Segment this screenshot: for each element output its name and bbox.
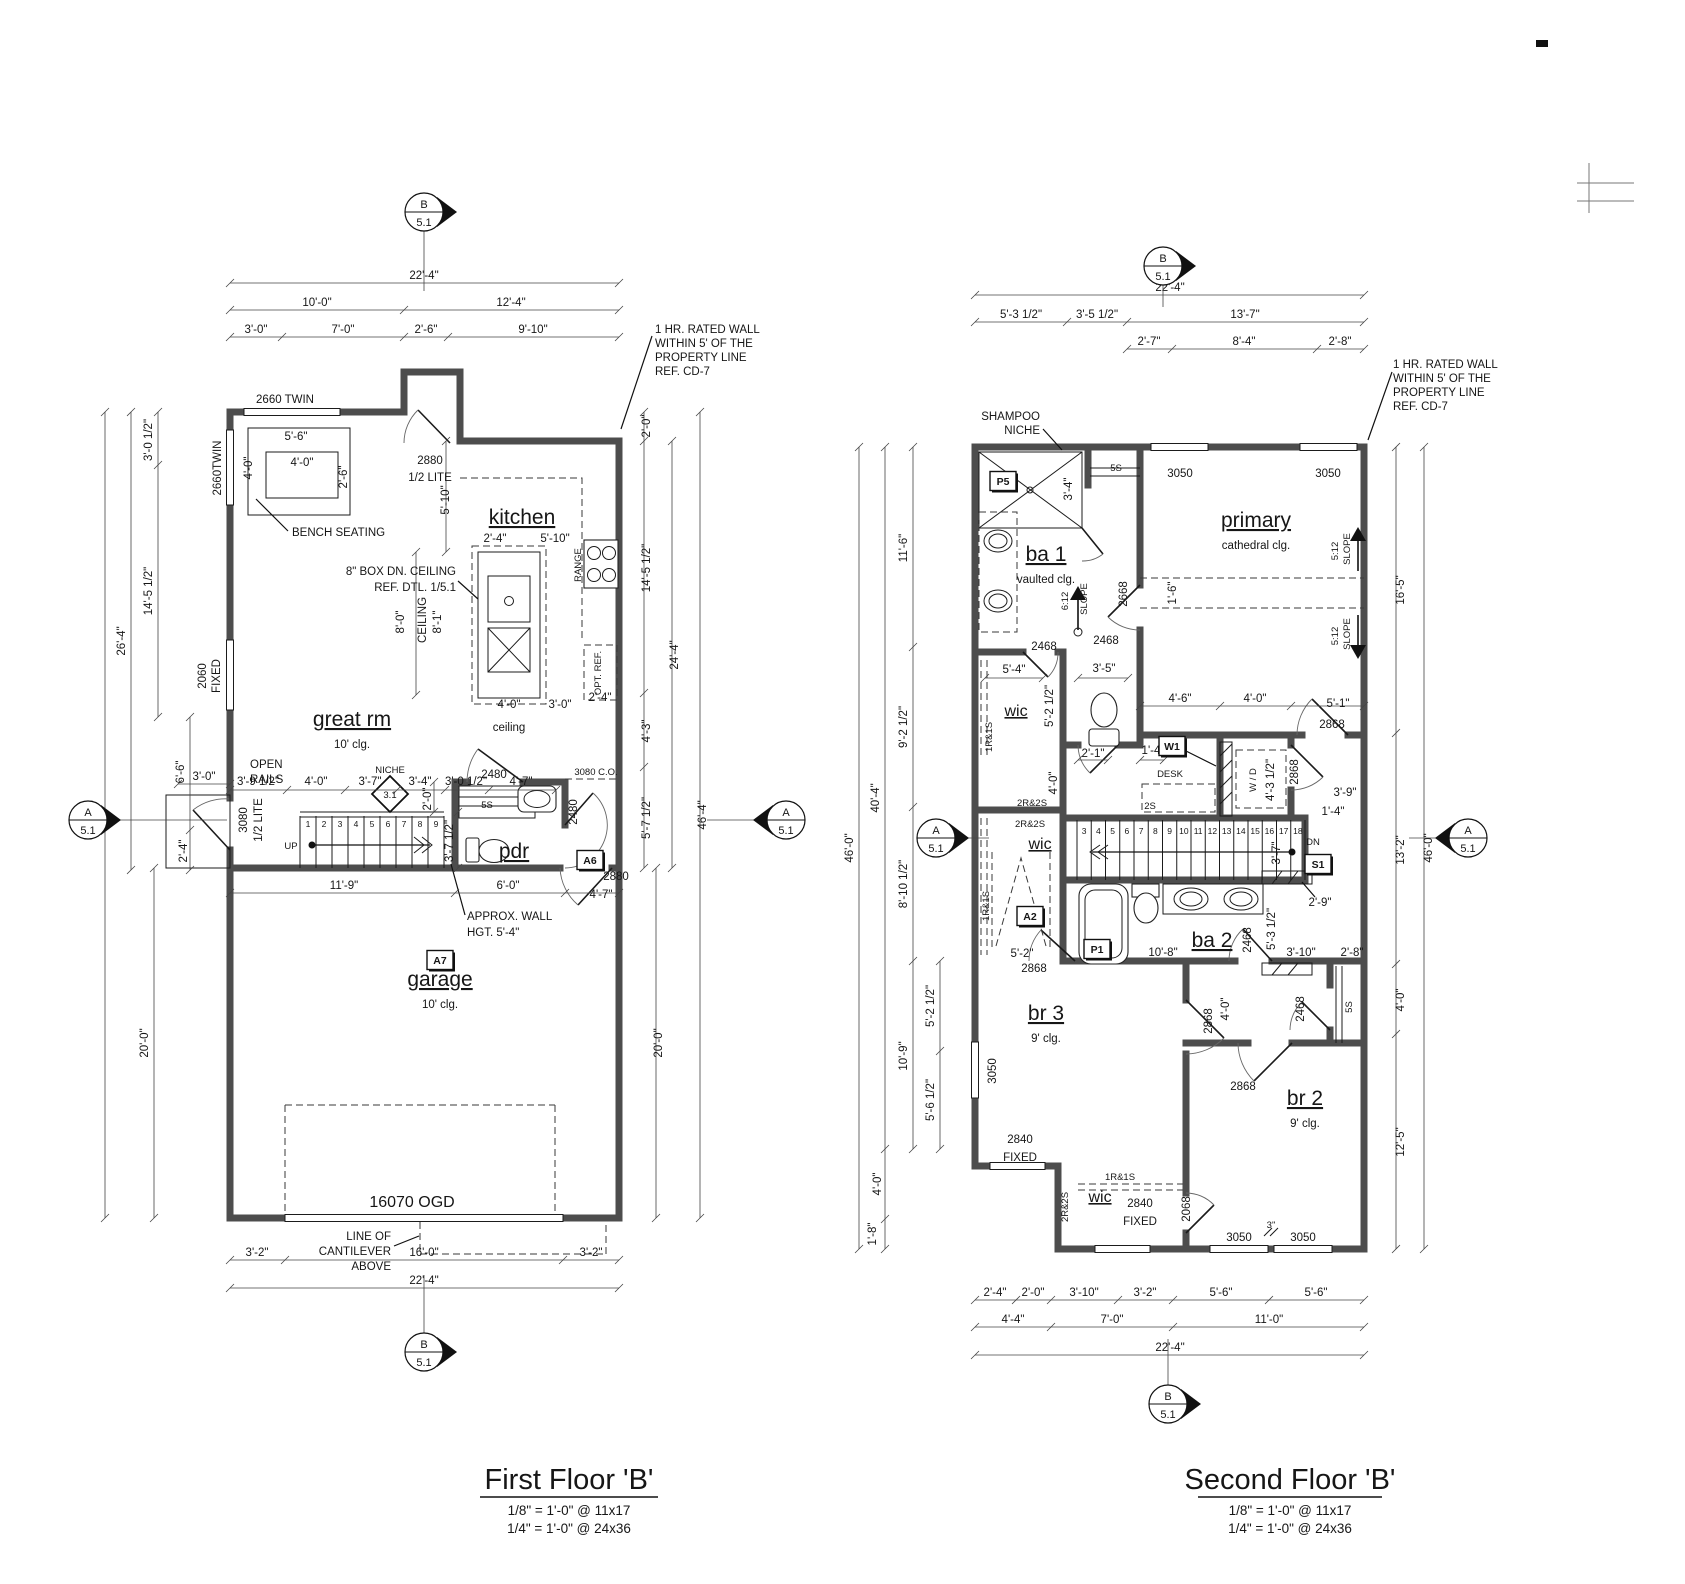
ff-fixtures bbox=[166, 428, 619, 1254]
dim-label: 3'-2" bbox=[580, 1247, 603, 1259]
dim-label: 4'-0" bbox=[1048, 772, 1060, 795]
stair-number: 4 bbox=[1096, 826, 1101, 836]
dim-label: CEILING bbox=[417, 597, 429, 643]
dim-label: 2R&2S bbox=[1015, 819, 1045, 830]
stair-number: 1 bbox=[306, 819, 311, 829]
dim-label: 4'-7" bbox=[510, 776, 533, 788]
dim-chain bbox=[127, 408, 135, 874]
dim-label: 3050 bbox=[1226, 1232, 1252, 1244]
second-floor-scale-b: 1/4" = 1'-0" @ 24x36 bbox=[1228, 1521, 1352, 1536]
ba2-toilet-bowl bbox=[1134, 893, 1158, 923]
stair-number: 18 bbox=[1293, 826, 1303, 836]
stair-arrow-start bbox=[309, 842, 316, 849]
dim-label: 2868 bbox=[1230, 1081, 1256, 1093]
dim-label: 14'-5 1/2" bbox=[641, 544, 653, 592]
dim-label: 9' clg. bbox=[1031, 1033, 1061, 1045]
dim-label: 16'-0" bbox=[409, 1247, 438, 1259]
marker-number: 5.1 bbox=[80, 825, 95, 837]
registration-marks bbox=[1536, 40, 1634, 213]
dim-chain bbox=[855, 443, 863, 1253]
dim-label: 5:12 bbox=[1330, 542, 1341, 561]
dim-label: 1R&1S bbox=[981, 891, 992, 921]
dim-label: 2'-0" bbox=[1022, 1287, 1045, 1299]
dim-label: vaulted clg. bbox=[1017, 574, 1075, 586]
dim-chain bbox=[150, 864, 158, 1222]
island-sink-cabinet bbox=[488, 576, 530, 622]
dim-label: 11'-9" bbox=[330, 880, 358, 892]
dim-label: 3'-10" bbox=[1069, 1287, 1098, 1299]
detail-tag: A6 bbox=[577, 851, 605, 872]
dim-label: 4'-7" bbox=[590, 889, 613, 901]
closet-shelf-lines bbox=[1336, 966, 1342, 1043]
detail-tag-label: P5 bbox=[997, 476, 1010, 488]
stair-number: 2 bbox=[322, 819, 327, 829]
marker-letter: B bbox=[1164, 1391, 1171, 1403]
dim-label: 2'-8" bbox=[1341, 947, 1364, 959]
dim-label: 5'-2" bbox=[1011, 948, 1034, 960]
dim-label: 2868 bbox=[1203, 1008, 1215, 1034]
dim-label: W / D bbox=[1248, 768, 1259, 792]
dim-label: 1/2 LITE bbox=[408, 472, 452, 484]
section-marker-B: B5.1 bbox=[1144, 247, 1196, 307]
dim-label: 2660TWIN bbox=[212, 441, 224, 496]
dim-label: 5'-6" bbox=[1210, 1287, 1233, 1299]
dim-label: 5'-2 1/2" bbox=[925, 985, 937, 1027]
detail-tag-label: A6 bbox=[583, 855, 597, 867]
box-ceiling-note: 8" BOX DN. CEILING bbox=[346, 566, 456, 578]
toilet-bowl bbox=[1091, 693, 1117, 727]
dim-label: 12'-5" bbox=[1395, 1127, 1407, 1156]
dim-label: 2468 bbox=[1093, 635, 1119, 647]
ff-windows bbox=[227, 409, 564, 1222]
stair-arrow-start bbox=[1289, 849, 1296, 856]
dim-label: 2868 bbox=[1021, 963, 1047, 975]
marker-number: 5.1 bbox=[1160, 1409, 1175, 1421]
dim-label: 3'-0 1/2" bbox=[143, 419, 155, 461]
stair-treads: 123456789 bbox=[300, 816, 444, 868]
dim-label: 10'-0" bbox=[302, 297, 331, 309]
approx-wall-note: APPROX. WALL bbox=[467, 911, 553, 923]
dim-label: 2S bbox=[1144, 801, 1156, 812]
dim-label: 9'-10" bbox=[518, 324, 547, 336]
corner-mark bbox=[1536, 40, 1548, 47]
dim-label: 2668 bbox=[1118, 581, 1130, 607]
dim-label: 2'-8" bbox=[1329, 336, 1352, 348]
dim-label: 24'-4" bbox=[669, 640, 681, 669]
dim-label: 3'-5 1/2" bbox=[1076, 309, 1118, 321]
dim-label: 2468 bbox=[1295, 996, 1307, 1022]
rated-wall-note: PROPERTY LINE bbox=[655, 352, 747, 364]
dim-label: 3050 bbox=[1290, 1232, 1316, 1244]
dim-label: 26'-4" bbox=[116, 626, 128, 655]
dim-label: 2'-4" bbox=[178, 840, 190, 863]
stair-number: 5 bbox=[1110, 826, 1115, 836]
room-label-br2: br 2 bbox=[1287, 1087, 1323, 1110]
dim-label: 5'-10" bbox=[440, 485, 452, 514]
open-rails-note: OPEN bbox=[250, 759, 283, 771]
dim-label: SLOPE bbox=[1342, 533, 1353, 565]
dim-label: 22'-4" bbox=[1155, 1342, 1184, 1354]
rated-wall-note: PROPERTY LINE bbox=[1393, 387, 1485, 399]
dim-label: 6'-0" bbox=[497, 880, 520, 892]
pdr-toilet-tank bbox=[466, 838, 479, 862]
dim-label: 4'-0" bbox=[305, 776, 328, 788]
dim-label: 4'-0" bbox=[243, 457, 255, 480]
room-label-pdr: pdr bbox=[499, 840, 529, 863]
dim-label: 9'-2 1/2" bbox=[898, 706, 910, 748]
marker-number: 5.1 bbox=[1460, 843, 1475, 855]
stair-number: 14 bbox=[1236, 826, 1246, 836]
open-rails-note: RAILS bbox=[250, 774, 284, 786]
marker-letter: B bbox=[420, 1339, 427, 1351]
dim-label: SLOPE bbox=[1342, 618, 1353, 650]
dim-label: 3050 bbox=[987, 1058, 999, 1084]
dim-label: 3'-0" bbox=[193, 771, 216, 783]
dim-label: 3'-0" bbox=[549, 699, 572, 711]
dim-label: 4'-0" bbox=[872, 1173, 884, 1196]
rated-wall-note: WITHIN 5' OF THE bbox=[1393, 373, 1491, 385]
dim-label: 11'-6" bbox=[898, 534, 910, 562]
dim-label: 5'-6" bbox=[1305, 1287, 1328, 1299]
dim-label: OPT. REF. bbox=[593, 651, 604, 695]
dim-label: FIXED bbox=[1003, 1152, 1037, 1164]
dim-label: 3'-0" bbox=[245, 324, 268, 336]
dim-chain bbox=[881, 443, 889, 1253]
dim-label: 3'-5" bbox=[1093, 663, 1116, 675]
dim-label: 3'-2" bbox=[246, 1247, 269, 1259]
dim-label: 4'-4" bbox=[1002, 1314, 1025, 1326]
dim-label: 2660 TWIN bbox=[256, 394, 314, 406]
cantilever-dashed bbox=[285, 1105, 606, 1254]
approx-wall-note: HGT. 5'-4" bbox=[467, 927, 519, 939]
dim-label: 4'-6" bbox=[1169, 693, 1192, 705]
stair-number: 8 bbox=[418, 819, 423, 829]
room-label-primary: primary bbox=[1221, 509, 1292, 532]
dim-label: FIXED bbox=[211, 659, 223, 693]
island-dw-x bbox=[488, 628, 530, 672]
stair-number: 11 bbox=[1194, 826, 1203, 836]
detail-tag-label: A7 bbox=[433, 955, 447, 967]
room-label-kitchen: kitchen bbox=[489, 506, 556, 529]
dim-label: 3'-2" bbox=[1134, 1287, 1157, 1299]
dim-label: 11'-0" bbox=[1255, 1314, 1283, 1326]
stair-number: 15 bbox=[1250, 826, 1260, 836]
dim-label: 2880 bbox=[603, 871, 629, 883]
rated-wall-note: WITHIN 5' OF THE bbox=[655, 338, 753, 350]
dim-label: 20'-0" bbox=[139, 1028, 151, 1057]
dim-label: 1/2 LITE bbox=[253, 798, 265, 842]
dim-label: 5'-3 1/2" bbox=[1266, 908, 1278, 950]
marker-letter: A bbox=[932, 825, 940, 837]
dim-label: 5'-3 1/2" bbox=[1000, 309, 1042, 321]
dim-chain bbox=[936, 957, 944, 1153]
stair-open-rails bbox=[300, 812, 444, 817]
dim-label: 2'-4" bbox=[984, 1287, 1007, 1299]
dim-label: NICHE bbox=[375, 765, 405, 776]
section-marker-A: A5.1 bbox=[69, 801, 227, 839]
section-marker-A: A5.1 bbox=[1409, 819, 1487, 857]
section-marker-A: A5.1 bbox=[707, 801, 805, 839]
cantilever-note: LINE OF bbox=[346, 1231, 391, 1243]
stair-number: 7 bbox=[1139, 826, 1144, 836]
crosshair-mark bbox=[1577, 163, 1634, 213]
dim-label: 4'-0" bbox=[291, 457, 314, 469]
rated-wall-note: REF. CD-7 bbox=[1393, 401, 1448, 413]
room-label-br3: br 3 bbox=[1028, 1002, 1064, 1025]
second-floor-title: Second Floor 'B' bbox=[1185, 1464, 1396, 1496]
marker-letter: A bbox=[84, 807, 92, 819]
stair-number: 17 bbox=[1279, 826, 1289, 836]
stair-number: 6 bbox=[1125, 826, 1130, 836]
dim-label: 3'-9" bbox=[1334, 787, 1357, 799]
stair-number: 9 bbox=[1167, 826, 1172, 836]
dim-label: 2840 bbox=[1007, 1134, 1033, 1146]
dim-label: 5:12 bbox=[1330, 627, 1341, 646]
dim-label: 40'-4" bbox=[870, 783, 882, 812]
dim-label: 46'-4" bbox=[697, 800, 709, 829]
dim-label: 6:12 bbox=[1060, 592, 1071, 611]
first-floor-scale-b: 1/4" = 1'-0" @ 24x36 bbox=[507, 1521, 631, 1536]
dim-label: 16070 OGD bbox=[369, 1194, 454, 1211]
dim-label: 1R&1S bbox=[984, 722, 995, 752]
detail-tag: A7 bbox=[427, 951, 455, 972]
marker-number: 5.1 bbox=[778, 825, 793, 837]
washer-dryer bbox=[1236, 750, 1286, 808]
dim-label: 3'-7 1/2" bbox=[444, 820, 456, 862]
dim-label: 5'-2 1/2" bbox=[1044, 685, 1056, 727]
stair-number: 3 bbox=[1082, 826, 1087, 836]
room-label-great-rm: great rm bbox=[313, 708, 391, 731]
dim-label: 3080 C.O. bbox=[574, 767, 617, 778]
dim-label: 3080 bbox=[238, 807, 250, 833]
dim-label: 4'-3 1/2" bbox=[1265, 759, 1277, 801]
dim-label: 7'-0" bbox=[1101, 1314, 1124, 1326]
marker-letter: B bbox=[420, 199, 427, 211]
stair-number: 10 bbox=[1179, 826, 1189, 836]
dim-label: 2'-0" bbox=[641, 415, 653, 438]
stair-number: 9 bbox=[434, 819, 439, 829]
first-floor-scale-a: 1/8" = 1'-0" @ 11x17 bbox=[508, 1503, 631, 1518]
dim-label: 10' clg. bbox=[334, 739, 370, 751]
dim-label: 13'-7" bbox=[1230, 309, 1259, 321]
dim-label: 14'-5 1/2" bbox=[143, 567, 155, 615]
stair-number: 6 bbox=[386, 819, 391, 829]
toilet-tank bbox=[1089, 729, 1119, 746]
dim-label: 12'-4" bbox=[496, 297, 525, 309]
dim-label: 3'-4" bbox=[409, 776, 432, 788]
stair-number: 4 bbox=[354, 819, 359, 829]
dim-label: 8'-0" bbox=[395, 611, 407, 634]
dim-label: 2R&2S bbox=[1017, 798, 1047, 809]
dim-label: 4'-0" bbox=[1220, 998, 1232, 1021]
dim-label: 4'-3" bbox=[641, 720, 653, 743]
dim-label: DN bbox=[1306, 837, 1320, 848]
stair-number: 13 bbox=[1222, 826, 1232, 836]
box-ceiling-outline bbox=[472, 546, 546, 704]
dim-label: 5'-6" bbox=[285, 431, 308, 443]
marker-letter: B bbox=[1159, 253, 1166, 265]
room-label-wic: wic bbox=[1027, 836, 1051, 853]
dim-label: 4'-0" bbox=[498, 699, 521, 711]
dim-label: SLOPE bbox=[1079, 583, 1090, 615]
dim-label: 7'-0" bbox=[332, 324, 355, 336]
dim-label: 2'-0" bbox=[422, 788, 434, 811]
dim-label: 10'-8" bbox=[1148, 947, 1177, 959]
rated-wall-note: 1 HR. RATED WALL bbox=[655, 324, 760, 336]
room-label-ba1: ba 1 bbox=[1026, 543, 1067, 566]
marker-number: 5.1 bbox=[928, 843, 943, 855]
dim-label: 5'-6 1/2" bbox=[925, 1079, 937, 1121]
marker-number: 5.1 bbox=[1155, 271, 1170, 283]
rated-wall-note: 1 HR. RATED WALL bbox=[1393, 359, 1498, 371]
dim-label: 2868 bbox=[1319, 719, 1345, 731]
shampoo-niche-note: SHAMPOO bbox=[981, 411, 1040, 423]
dim-label: 2'-1" bbox=[1082, 748, 1105, 760]
dim-label: 4'-0" bbox=[1395, 989, 1407, 1012]
stair-number: 5 bbox=[370, 819, 375, 829]
dim-label: 2'-6" bbox=[415, 324, 438, 336]
dim-label: 5S bbox=[481, 800, 493, 811]
stair-number: 3 bbox=[338, 819, 343, 829]
detail-tag: S1 bbox=[1305, 855, 1333, 876]
dim-label: UP bbox=[284, 841, 297, 852]
detail-tag: A2 bbox=[1017, 907, 1045, 928]
room-label-ba2: ba 2 bbox=[1192, 929, 1233, 952]
dim-label: 2480 bbox=[481, 769, 507, 781]
second-floor-scale-a: 1/8" = 1'-0" @ 11x17 bbox=[1229, 1503, 1352, 1518]
dim-label: FIXED bbox=[1123, 1216, 1157, 1228]
detail-tag: P1 bbox=[1084, 940, 1112, 961]
dim-chain bbox=[226, 306, 623, 314]
dim-label: 3'-10" bbox=[1286, 947, 1315, 959]
shampoo-niche-note: NICHE bbox=[1004, 425, 1040, 437]
dim-label: 2068 bbox=[1181, 1196, 1193, 1222]
floor-plan-sheet: 123456789 22'-4"10'-0"12'-4"3'-0"7'-0"2'… bbox=[0, 0, 1685, 1584]
landing-shelf bbox=[1262, 963, 1312, 975]
dim-label: 2868 bbox=[1289, 759, 1301, 785]
dim-label: 3'-7" bbox=[359, 776, 382, 788]
sf-titleblock: Second Floor 'B' 1/8" = 1'-0" @ 11x17 1/… bbox=[1185, 1464, 1396, 1536]
dim-label: 6'-6" bbox=[175, 761, 187, 784]
room-label-wic: wic bbox=[1003, 703, 1027, 720]
dim-label: 3'-4" bbox=[1063, 478, 1075, 501]
dim-label: 20'-0" bbox=[653, 1028, 665, 1057]
garage-door-panel bbox=[285, 1215, 563, 1222]
dim-label: 3.1 bbox=[383, 790, 396, 801]
dim-label: 5S bbox=[1344, 1001, 1355, 1013]
dim-label: 2'-4" bbox=[589, 692, 612, 704]
detail-tag-label: A2 bbox=[1023, 911, 1037, 923]
dim-label: 5'-4" bbox=[1003, 664, 1026, 676]
dim-label: 2468 bbox=[1242, 927, 1254, 953]
dim-label: 2060 bbox=[197, 663, 209, 689]
stair-number: 12 bbox=[1208, 826, 1218, 836]
cantilever-note: CANTILEVER bbox=[319, 1246, 391, 1258]
dim-label: 8'-10 1/2" bbox=[898, 860, 910, 908]
dim-label: 2'-9" bbox=[1309, 897, 1332, 909]
dim-label: 10'-9" bbox=[898, 1041, 910, 1070]
ff-labels: 22'-4"10'-0"12'-4"3'-0"7'-0"2'-6"9'-10"2… bbox=[90, 270, 760, 1287]
dim-label: 2840 bbox=[1127, 1198, 1153, 1210]
stair-number: 16 bbox=[1265, 826, 1275, 836]
dim-label: 2'-4" bbox=[484, 533, 507, 545]
dim-chain bbox=[909, 443, 917, 1153]
dim-label: 9' clg. bbox=[1290, 1118, 1320, 1130]
dim-label: 8'-1" bbox=[432, 611, 444, 634]
marker-letter: A bbox=[1464, 825, 1472, 837]
stair-number: 8 bbox=[1153, 826, 1158, 836]
dim-chain bbox=[1074, 674, 1132, 682]
marker-number: 5.1 bbox=[416, 1357, 431, 1369]
dim-label: 2'-7" bbox=[1138, 336, 1161, 348]
dim-label: 2'-6" bbox=[338, 466, 350, 489]
dim-label: 1'-6" bbox=[1167, 582, 1179, 605]
rated-wall-note: REF. CD-7 bbox=[655, 366, 710, 378]
dim-label: 3" bbox=[1267, 1220, 1276, 1231]
dim-chain bbox=[154, 408, 162, 721]
dim-label: 46'-0" bbox=[844, 833, 856, 862]
first-floor-title: First Floor 'B' bbox=[485, 1464, 654, 1496]
dim-label: 16'-5" bbox=[1395, 575, 1407, 604]
dim-label: 1'-4" bbox=[1322, 806, 1345, 818]
stair-number: 7 bbox=[402, 819, 407, 829]
dim-chain bbox=[971, 1323, 1368, 1331]
detail-tag: P5 bbox=[990, 472, 1018, 493]
section-marker-B: B5.1 bbox=[405, 1275, 457, 1371]
ff-titleblock: First Floor 'B' 1/8" = 1'-0" @ 11x17 1/4… bbox=[480, 1464, 658, 1536]
dim-label: 3050 bbox=[1315, 468, 1341, 480]
room-label-wic: wic bbox=[1087, 1189, 1111, 1206]
kitchen-island bbox=[478, 552, 540, 698]
detail-tag: W1 bbox=[1159, 737, 1187, 758]
dim-label: 10' clg. bbox=[422, 999, 458, 1011]
detail-tag-label: S1 bbox=[1312, 859, 1325, 871]
dim-label: 2R&2S bbox=[1060, 1192, 1071, 1222]
dim-label: 13'-2" bbox=[1395, 835, 1407, 864]
section-markers: B5.1B5.1A5.1A5.1B5.1B5.1A5.1A5.1 bbox=[69, 193, 1487, 1423]
box-ceiling-note: REF. DTL. 1/5.1 bbox=[374, 582, 456, 594]
attic-access bbox=[992, 852, 1050, 948]
dim-label: 5'-7 1/2" bbox=[641, 797, 653, 839]
dim-label: 5'-1" bbox=[1327, 698, 1350, 710]
dim-label: 4'-0" bbox=[1244, 693, 1267, 705]
dim-label: 1'-8" bbox=[867, 1223, 879, 1246]
marker-number: 5.1 bbox=[416, 217, 431, 229]
plan-drawing: 123456789 22'-4"10'-0"12'-4"3'-0"7'-0"2'… bbox=[0, 0, 1685, 1584]
dim-label: ceiling bbox=[493, 722, 526, 734]
detail-tag-label: P1 bbox=[1091, 944, 1104, 956]
dim-label: DESK bbox=[1157, 769, 1184, 780]
island-sink-drain bbox=[505, 597, 514, 606]
second-floor-plan: 3456789101112131415161718 22'-4"5'-3 1/2… bbox=[844, 282, 1498, 1536]
dim-label: 1R&1S bbox=[1105, 1172, 1135, 1183]
dim-label: 3050 bbox=[1167, 468, 1193, 480]
cantilever-note: ABOVE bbox=[351, 1261, 391, 1273]
dim-label: 8'-4" bbox=[1233, 336, 1256, 348]
dim-label: 2480 bbox=[568, 799, 580, 825]
dim-label: 5S bbox=[1110, 463, 1122, 474]
dim-label: 2468 bbox=[1031, 641, 1057, 653]
detail-tag-label: W1 bbox=[1164, 741, 1180, 753]
dim-label: 5'-10" bbox=[540, 533, 569, 545]
bench-seating-note: BENCH SEATING bbox=[292, 527, 385, 539]
dim-chain bbox=[226, 889, 623, 897]
marker-letter: A bbox=[782, 807, 790, 819]
dim-label: RANGE bbox=[573, 548, 584, 582]
dim-label: cathedral clg. bbox=[1222, 540, 1290, 552]
dim-label: 3'-7" bbox=[1271, 842, 1283, 865]
dim-label: 2880 bbox=[417, 455, 443, 467]
